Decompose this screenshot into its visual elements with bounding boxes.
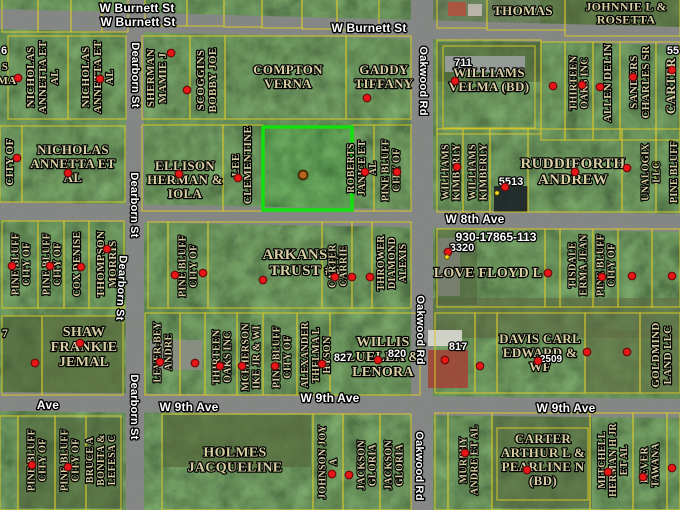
parcel-owner-label: WILLISLUELLA &LENORA [346,335,420,380]
parcel-point-marker[interactable] [534,357,542,365]
parcel-owner-label: LOVE FLOYD L [434,266,543,281]
parcel-point-marker[interactable] [668,272,676,280]
parcel-owner-label: PINE BLUFF [669,141,680,203]
street-label: W Burnett St [100,15,175,29]
parcel-owner-label: TISDALEERMA JEAN [568,234,590,296]
street-label: Oakwood Rd [413,431,425,500]
yellow-point-marker[interactable] [445,255,449,259]
parcel-point-marker[interactable] [668,464,676,472]
parcel-point-marker[interactable] [374,356,382,364]
parcel-point-marker[interactable] [259,276,267,284]
parcel-point-marker[interactable] [171,271,179,279]
address-label: 711 [454,57,472,69]
parcel-owner-label: SCOGGINSBOBBY JOE [195,48,219,113]
parcel-point-marker[interactable] [318,360,326,368]
parcel-point-marker[interactable] [639,473,647,481]
parcel-owner-label: 7 [2,326,8,340]
parcel-point-marker[interactable] [629,73,637,81]
selected-parcel-marker[interactable] [299,171,308,180]
street-label: W 9th Ave [301,391,360,405]
parcel-owner-label: S [2,61,8,73]
address-label: 2509 [540,354,563,365]
street-label: W Burnett St [331,21,406,35]
map-viewport[interactable]: NICHOLASANNETTA ETALNICHOLASANNETTA ETAL… [0,0,680,510]
parcel-point-marker[interactable] [156,358,164,366]
street-label: W Burnett St [99,1,174,15]
parcel-point-marker[interactable] [103,245,111,253]
parcel-owner-label: THIRTEENOAKS INC [212,329,234,384]
parcel-point-marker[interactable] [167,49,175,57]
street-label: Dearborn St [128,374,140,439]
street-label: W 9th Ave [160,400,219,414]
address-label: 55 [667,45,679,57]
address-label: 3320 [450,242,474,254]
parcel-point-marker[interactable] [271,362,279,370]
parcel-owner-label: CARTERCARRIE [328,244,350,288]
parcel-point-marker[interactable] [46,262,54,270]
parcel-point-marker[interactable] [544,269,552,277]
street-label: W 9th Ave [537,401,596,415]
parcel-point-marker[interactable] [28,461,36,469]
parcel-owner-label: WILLIAMSVELMA (BD) [449,65,530,94]
parcel-point-marker[interactable] [175,170,183,178]
parcel-point-marker[interactable] [331,273,339,281]
parcel-point-marker[interactable] [199,269,207,277]
parcel-point-marker[interactable] [191,359,199,367]
parcel-point-marker[interactable] [366,273,374,281]
parcel-owner-label: JACKSONGLORIA [357,440,379,490]
parcel-point-marker[interactable] [393,168,401,176]
parcel-point-marker[interactable] [64,169,72,177]
parcel-point-marker[interactable] [64,463,72,471]
parcel-owner-label: GADDYTIFFANY [355,62,414,91]
parcel-point-marker[interactable] [523,466,531,474]
street-label: Dearborn St [129,42,141,107]
parcel-point-marker[interactable] [8,262,16,270]
parcel-point-marker[interactable] [216,362,224,370]
address-label: 827 [334,352,352,364]
parcel-owner-label: BRUCE ABONITA &LEFESA C [85,434,118,485]
parcel-point-marker[interactable] [238,362,246,370]
parcel-owner-label: SHERMANMAMIE J [145,49,169,107]
parcel-map[interactable]: NICHOLASANNETTA ETALNICHOLASANNETTA ETAL… [0,0,680,510]
parcel-owner-label: MCPHERSONIKE JR & WI [241,323,263,391]
street-label: Oakwood Rd [414,295,426,364]
parcel-point-marker[interactable] [441,356,449,364]
parcel-owner-label: WILLIAMSKIMBERLY [441,143,463,201]
building [494,186,528,212]
parcel-point-marker[interactable] [13,154,21,162]
parcel-point-marker[interactable] [628,272,636,280]
parcel-owner-label: JACKSONGLORIA [384,440,406,490]
parcel-point-marker[interactable] [668,66,676,74]
street-label: Ave [37,398,59,412]
building [468,4,482,16]
parcel-owner-label: GOLDMINDLAND LLC [650,322,674,387]
parcel-point-marker[interactable] [345,471,353,479]
parcel-point-marker[interactable] [96,75,104,83]
parcel-point-marker[interactable] [361,168,369,176]
parcel-point-marker[interactable] [583,348,591,356]
parcel-point-marker[interactable] [571,168,579,176]
parcel-point-marker[interactable] [183,86,191,94]
parcel-owner-label: JOHNNIE L &ROSETTA [585,0,666,27]
selected-parcel-highlight[interactable] [263,127,352,210]
parcel-point-marker[interactable] [14,74,22,82]
parcel-point-marker[interactable] [598,273,606,281]
map-layers: NICHOLASANNETTA ETALNICHOLASANNETTA ETAL… [0,0,680,510]
parcel-point-marker[interactable] [76,339,84,347]
building [428,350,468,388]
parcel-point-marker[interactable] [501,183,509,191]
parcel-point-marker[interactable] [234,174,242,182]
parcel-owner-label: SANDERSCHARLES SR [628,45,652,119]
building [448,2,466,16]
parcel-point-marker[interactable] [623,164,631,172]
parcel-point-marker[interactable] [604,468,612,476]
parcel-owner-label: ALLEN DELIN [602,44,614,123]
parcel-owner-label: THOMAS [493,3,553,18]
yellow-point-marker[interactable] [495,191,499,195]
parcel-point-marker[interactable] [77,263,85,271]
parcel-point-marker[interactable] [549,82,557,90]
address-label: 817 [449,341,467,353]
address-label: 820 [388,348,406,360]
parcel-point-marker[interactable] [363,94,371,102]
parcel-point-marker[interactable] [328,470,336,478]
parcel-point-marker[interactable] [31,359,39,367]
parcel-owner-label: CITY OF [4,138,16,185]
address-label: 6 [1,45,7,57]
parcel-point-marker[interactable] [451,77,459,85]
parcel-point-marker[interactable] [578,81,586,89]
parcel-point-marker[interactable] [476,362,484,370]
street-label: W 8th Ave [446,212,505,226]
parcel-point-marker[interactable] [453,163,461,171]
parcel-point-marker[interactable] [596,83,604,91]
street-label: Oakwood Rd [417,46,429,115]
parcel-owner-label: WILLIAMSKIMBERLY [468,143,490,201]
street-label: Dearborn St [128,172,140,237]
parcel-point-marker[interactable] [348,273,356,281]
parcel-point-marker[interactable] [461,449,469,457]
parcel-point-marker[interactable] [623,348,631,356]
